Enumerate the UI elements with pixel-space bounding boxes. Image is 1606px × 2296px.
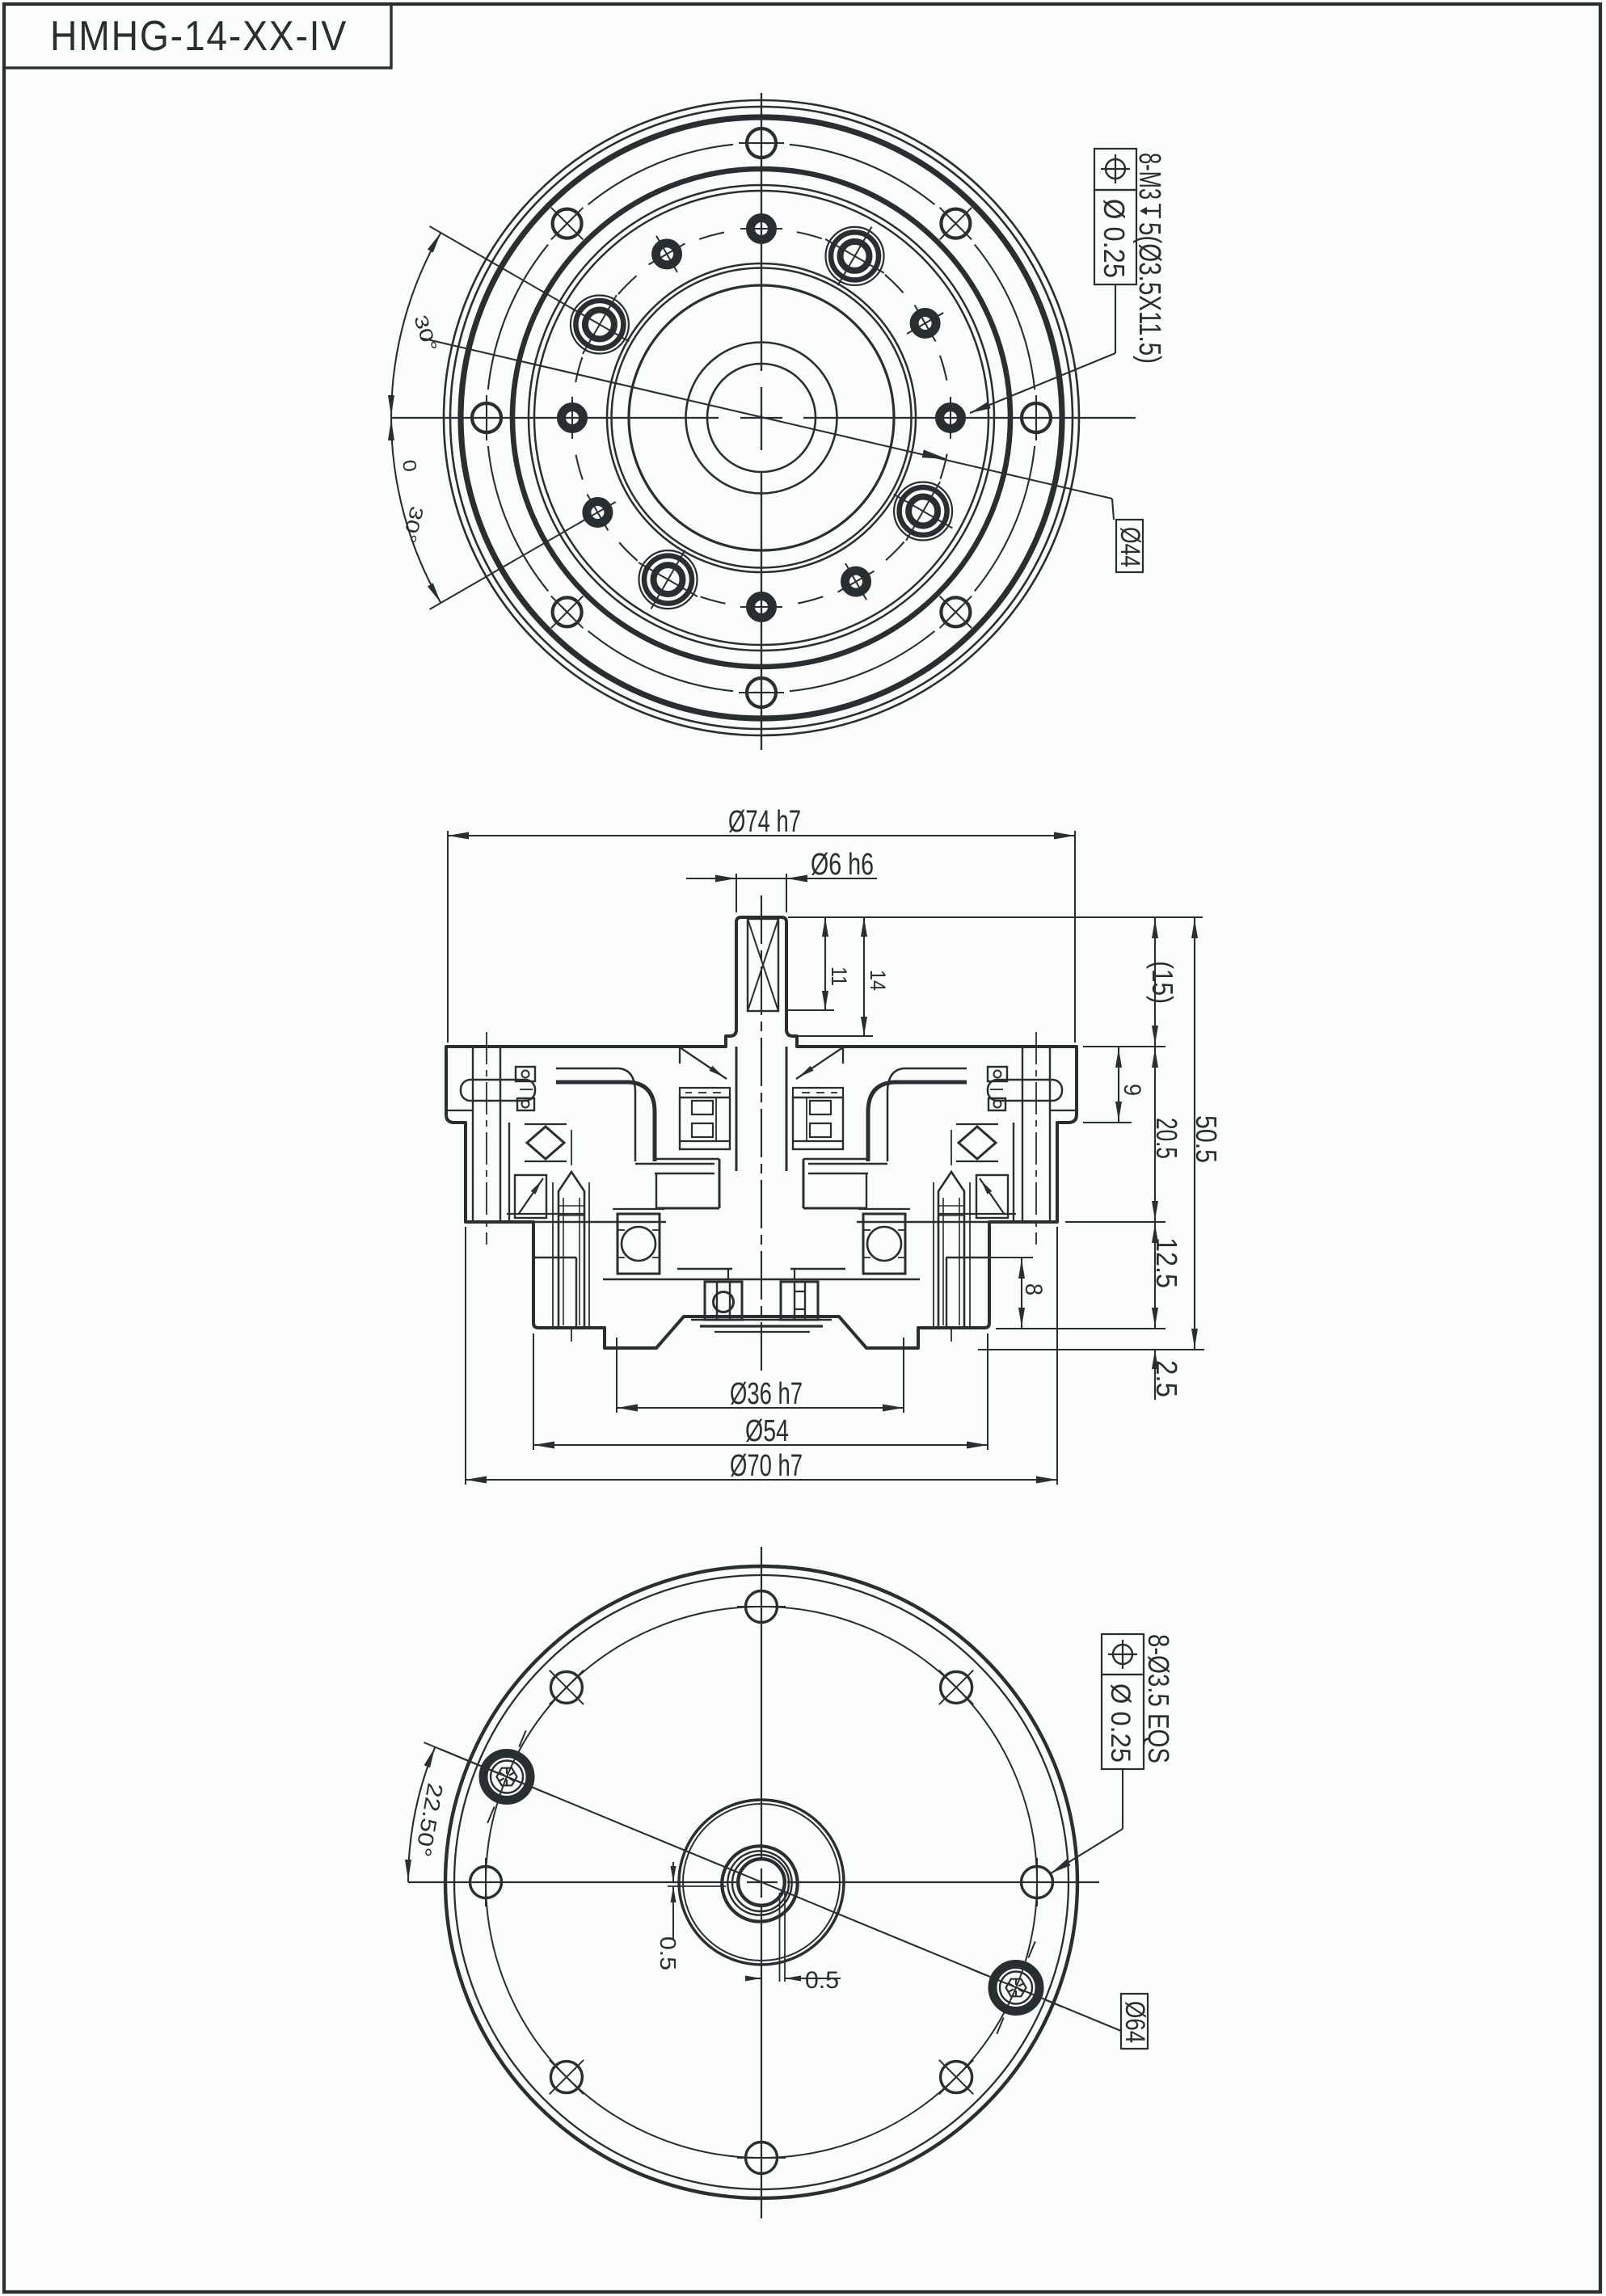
- svg-text:14: 14: [866, 970, 890, 991]
- svg-text:HMHG-14-XX-IV: HMHG-14-XX-IV: [50, 13, 348, 60]
- svg-text:8-Ø3.5 EQS: 8-Ø3.5 EQS: [1142, 1634, 1175, 1763]
- svg-text:Ø 0.25: Ø 0.25: [1105, 1683, 1136, 1763]
- svg-text:Ø36 h7: Ø36 h7: [730, 1377, 803, 1411]
- svg-text:0.5: 0.5: [805, 1967, 839, 1994]
- svg-text:50.5: 50.5: [1190, 1115, 1223, 1163]
- svg-text:0.5: 0.5: [655, 1936, 681, 1970]
- svg-text:8-M3: 8-M3: [1132, 153, 1166, 200]
- svg-text:Ø44: Ø44: [1115, 527, 1145, 567]
- svg-text:Ø64: Ø64: [1119, 2001, 1150, 2043]
- svg-text:Ø70 h7: Ø70 h7: [730, 1449, 803, 1483]
- svg-text:11: 11: [827, 967, 851, 986]
- svg-text:20.5: 20.5: [1150, 1118, 1183, 1159]
- svg-text:Ø54: Ø54: [745, 1414, 789, 1448]
- svg-text:(15): (15): [1146, 961, 1179, 1004]
- svg-text:Ø74 h7: Ø74 h7: [728, 805, 801, 839]
- svg-text:5(Ø3.5X11.5): 5(Ø3.5X11.5): [1132, 222, 1166, 364]
- svg-text:Ø6 h6: Ø6 h6: [811, 848, 874, 882]
- svg-text:9: 9: [1119, 1084, 1145, 1096]
- svg-text:8: 8: [1020, 1283, 1047, 1295]
- svg-text:2.5: 2.5: [1150, 1360, 1183, 1397]
- svg-text:12.5: 12.5: [1150, 1237, 1183, 1288]
- svg-text:Ø 0.25: Ø 0.25: [1098, 199, 1131, 278]
